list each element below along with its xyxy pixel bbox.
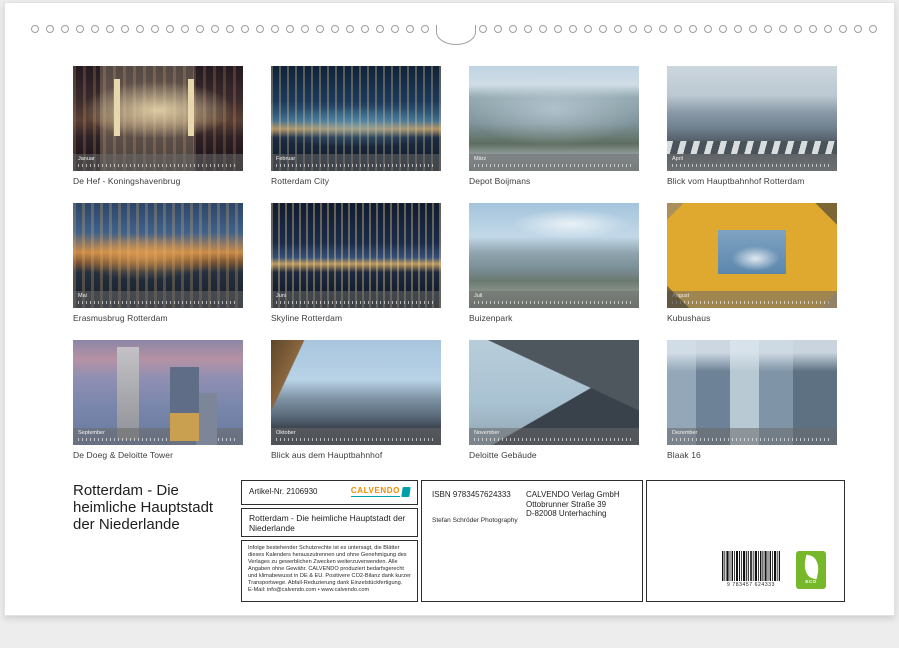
month-cell-januar: Januar De Hef - Koningshavenbrug (73, 66, 243, 203)
mini-calendar-days (672, 437, 832, 443)
month-label: Februar (276, 156, 436, 162)
mini-calendar-days (276, 163, 436, 169)
month-thumbnail-grid: Januar De Hef - Koningshavenbrug Februar… (73, 66, 837, 477)
mini-calendar-days (78, 437, 238, 443)
barcode: 9 783457 624333 (722, 551, 780, 588)
month-photo-april: April (667, 66, 837, 171)
month-label: Dezember (672, 430, 832, 436)
month-cell-april: April Blick vom Hauptbahnhof Rotterdam (667, 66, 837, 203)
barcode-digits: 9 783457 624333 (722, 582, 780, 588)
eco-label: ECO (805, 579, 816, 584)
month-photo-januar: Januar (73, 66, 243, 171)
month-label: Juni (276, 293, 436, 299)
month-cell-august: August Kubushaus (667, 203, 837, 340)
month-cell-oktober: Oktober Blick aus dem Hauptbahnhof (271, 340, 441, 477)
month-caption: Buizenpark (469, 313, 639, 323)
mini-calendar-days (276, 437, 436, 443)
month-label: März (474, 156, 634, 162)
article-number-box: Artikel-Nr. 2106930 CALVENDO (241, 480, 418, 505)
legal-text-box: Infolge bestehender Schutzrechte ist es … (241, 540, 418, 602)
hanging-notch (436, 25, 476, 45)
month-photo-februar: Februar (271, 66, 441, 171)
month-cell-juli: Juli Buizenpark (469, 203, 639, 340)
month-label: Mai (78, 293, 238, 299)
publisher-address: CALVENDO Verlag GmbH Ottobrunner Straße … (526, 490, 620, 519)
month-photo-november: November (469, 340, 639, 445)
month-photo-juni: Juni (271, 203, 441, 308)
leaf-icon (801, 555, 820, 580)
month-caption: Blick aus dem Hauptbahnhof (271, 450, 441, 460)
mini-calendar-dezember: Dezember (667, 428, 837, 445)
month-label: September (78, 430, 238, 436)
month-caption: Kubushaus (667, 313, 837, 323)
month-label: Januar (78, 156, 238, 162)
photographer-credit: Stefan Schröder Photography (432, 517, 518, 524)
month-caption: Rotterdam City (271, 176, 441, 186)
mini-calendar-mai: Mai (73, 291, 243, 308)
month-label: November (474, 430, 634, 436)
month-cell-september: September De Doeg & Deloitte Tower (73, 340, 243, 477)
barcode-bars (722, 551, 780, 581)
calvendo-icon (401, 487, 410, 497)
mini-calendar-days (474, 437, 634, 443)
mini-calendar-days (672, 163, 832, 169)
month-cell-februar: Februar Rotterdam City (271, 66, 441, 203)
month-cell-maerz: März Depot Boijmans (469, 66, 639, 203)
mini-calendar-januar: Januar (73, 154, 243, 171)
month-photo-august: August (667, 203, 837, 308)
isbn-publisher-box: ISBN 9783457624333 CALVENDO Verlag GmbH … (421, 480, 643, 602)
mini-calendar-days (474, 300, 634, 306)
month-label: August (672, 293, 832, 299)
month-caption: Depot Boijmans (469, 176, 639, 186)
month-caption: Skyline Rotterdam (271, 313, 441, 323)
month-label: Juli (474, 293, 634, 299)
month-photo-juli: Juli (469, 203, 639, 308)
month-label: April (672, 156, 832, 162)
eco-logo: ECO (796, 551, 826, 589)
mini-calendar-days (474, 163, 634, 169)
month-caption: De Doeg & Deloitte Tower (73, 450, 243, 460)
month-photo-maerz: März (469, 66, 639, 171)
month-label: Oktober (276, 430, 436, 436)
month-photo-oktober: Oktober (271, 340, 441, 445)
mini-calendar-april: April (667, 154, 837, 171)
mini-calendar-august: August (667, 291, 837, 308)
month-photo-mai: Mai (73, 203, 243, 308)
calvendo-wordmark: CALVENDO (351, 487, 400, 497)
barcode-box: 9 783457 624333 ECO (646, 480, 845, 602)
month-cell-november: November Deloitte Gebäude (469, 340, 639, 477)
month-caption: Erasmusbrug Rotterdam (73, 313, 243, 323)
calvendo-logo: CALVENDO (351, 487, 410, 497)
mini-calendar-juni: Juni (271, 291, 441, 308)
mini-calendar-juli: Juli (469, 291, 639, 308)
month-cell-juni: Juni Skyline Rotterdam (271, 203, 441, 340)
mini-calendar-days (78, 300, 238, 306)
mini-calendar-days (78, 163, 238, 169)
mini-calendar-november: November (469, 428, 639, 445)
article-number: Artikel-Nr. 2106930 (249, 487, 317, 496)
mini-calendar-days (672, 300, 832, 306)
month-caption: Deloitte Gebäude (469, 450, 639, 460)
month-caption: Blaak 16 (667, 450, 837, 460)
month-cell-mai: Mai Erasmusbrug Rotterdam (73, 203, 243, 340)
mini-calendar-oktober: Oktober (271, 428, 441, 445)
month-caption: De Hef - Koningshavenbrug (73, 176, 243, 186)
month-photo-september: September (73, 340, 243, 445)
mini-calendar-maerz: März (469, 154, 639, 171)
binding-holes-left (31, 25, 429, 33)
month-photo-dezember: Dezember (667, 340, 837, 445)
month-cell-dezember: Dezember Blaak 16 (667, 340, 837, 477)
mini-calendar-september: September (73, 428, 243, 445)
calendar-title: Rotterdam - Die heimliche Hauptstadt der… (73, 482, 243, 533)
mini-calendar-februar: Februar (271, 154, 441, 171)
binding-holes-right (479, 25, 877, 33)
month-caption: Blick vom Hauptbahnhof Rotterdam (667, 176, 837, 186)
mini-calendar-days (276, 300, 436, 306)
title-box: Rotterdam - Die heimliche Hauptstadt der… (241, 508, 418, 537)
calendar-back-page: Januar De Hef - Koningshavenbrug Februar… (4, 2, 895, 616)
